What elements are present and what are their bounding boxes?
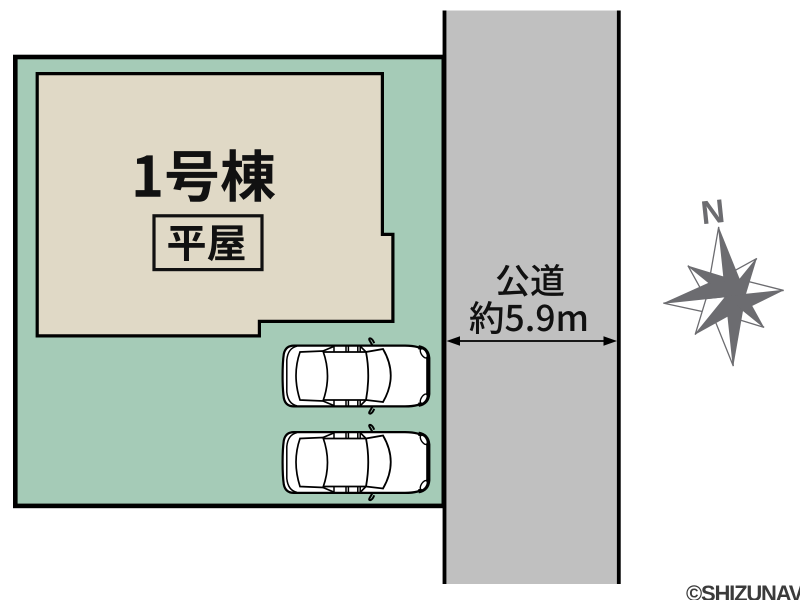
svg-text:©SHIZUNAV: ©SHIZUNAV <box>686 581 800 600</box>
svg-text:N: N <box>699 192 727 231</box>
